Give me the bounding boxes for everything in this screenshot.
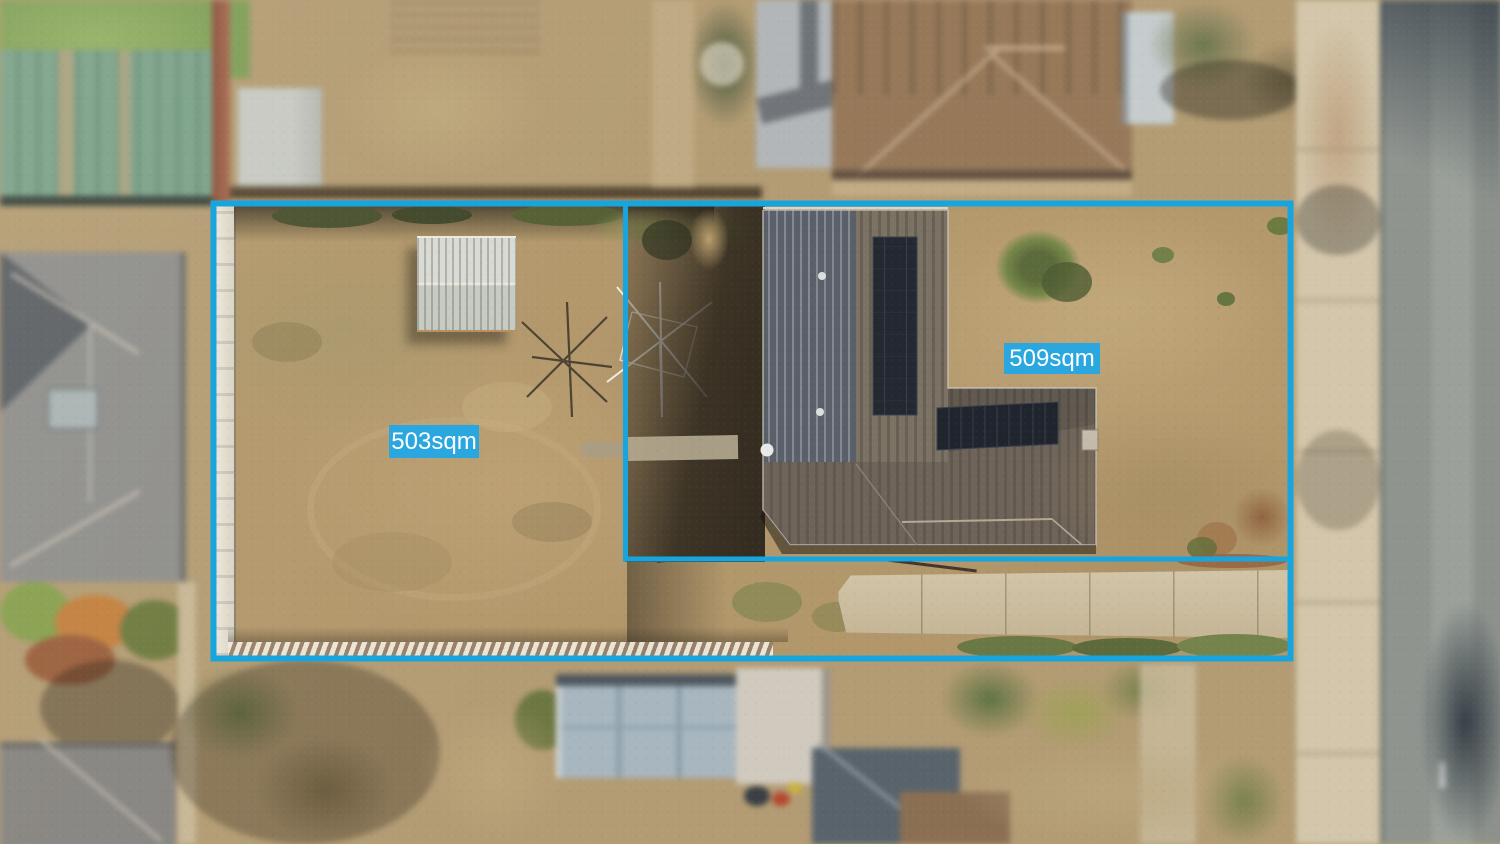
- lot-boundary-overlay: [0, 0, 1500, 844]
- area-label-503: 503sqm: [389, 425, 479, 458]
- area-label-509: 509sqm: [1004, 343, 1100, 374]
- aerial-property-photo: 503sqm 509sqm: [0, 0, 1500, 844]
- lot-divider-line: [626, 206, 1291, 559]
- outer-boundary-line: [214, 204, 1291, 659]
